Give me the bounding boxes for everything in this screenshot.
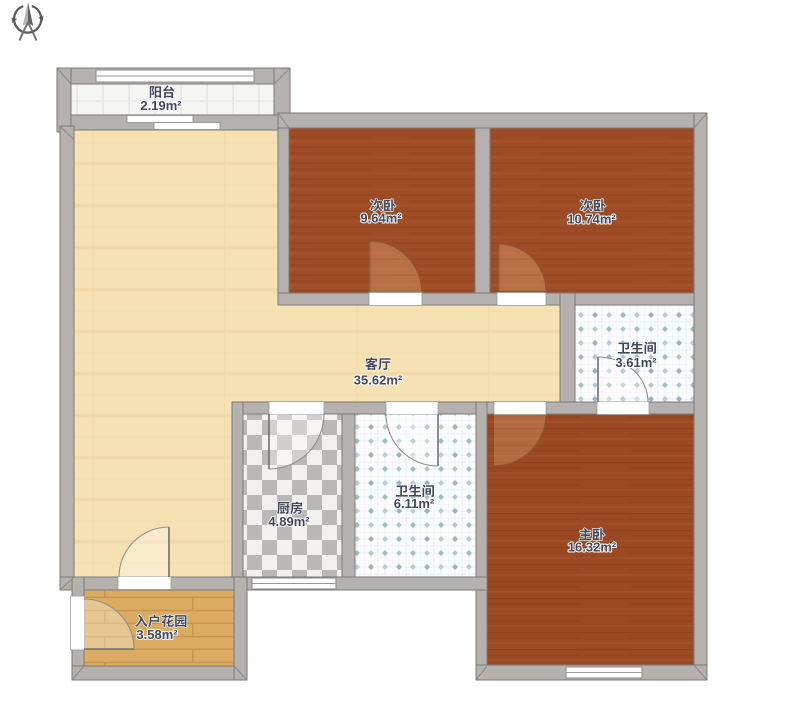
svg-text:2.19m²: 2.19m² [140, 98, 182, 113]
svg-text:3.61m²: 3.61m² [615, 355, 657, 370]
svg-text:10.74m²: 10.74m² [567, 212, 616, 227]
svg-text:6.11m²: 6.11m² [394, 496, 435, 511]
svg-text:4.89m²: 4.89m² [268, 514, 310, 529]
svg-text:9.64m²: 9.64m² [360, 211, 402, 226]
svg-text:16.32m²: 16.32m² [568, 540, 617, 555]
svg-text:35.62m²: 35.62m² [354, 373, 403, 388]
svg-text:3.58m²: 3.58m² [136, 627, 178, 642]
